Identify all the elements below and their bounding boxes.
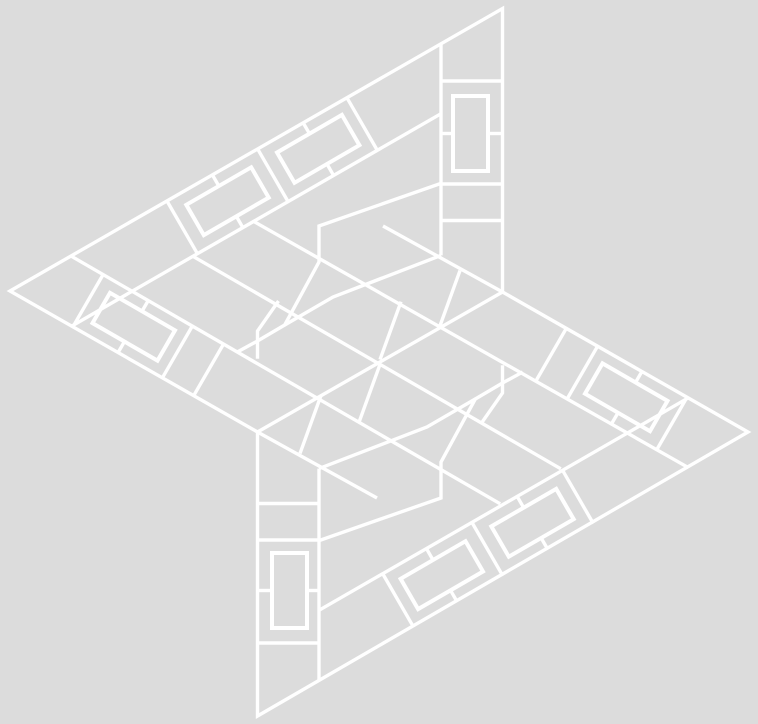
pinwheel-star-artwork bbox=[0, 0, 758, 724]
star-figure-svg bbox=[0, 0, 758, 724]
